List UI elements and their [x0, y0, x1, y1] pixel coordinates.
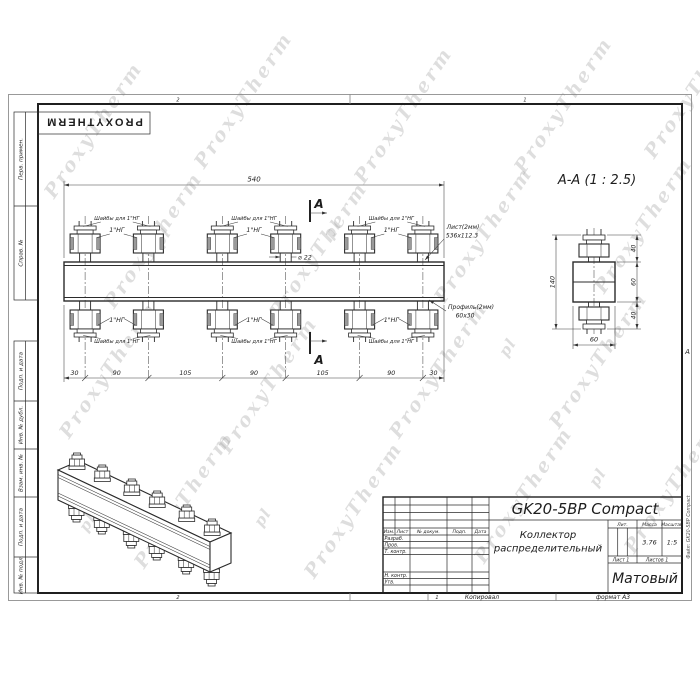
sidebar-columns: Перв. примен. Справ. № Подп. и дата Инв.…: [14, 112, 38, 594]
manifold-body: [64, 262, 444, 301]
section-mark-bottom: A: [310, 332, 327, 367]
row-checked: Пров.: [385, 542, 399, 548]
row-ncontrol: Н. контр.: [385, 573, 408, 579]
copied-label: Копировал: [465, 594, 499, 601]
sidebar-label: Инв. № дубл.: [19, 406, 25, 444]
chain-dim: 30: [429, 370, 437, 377]
section-letter: A: [313, 353, 323, 367]
dim-40-top-label: 40: [631, 245, 638, 253]
chain-dim: 90: [387, 370, 395, 377]
zone-number: 2: [176, 595, 179, 601]
dim-40-bottom-label: 40: [631, 312, 638, 320]
washers-label: Шайбы для 1"НГ: [94, 216, 140, 222]
doc-code: GK20-5BP Compact: [512, 500, 660, 518]
front-view: 540 30 90 105 90 105 90 30 Шайбы для 1: [64, 176, 494, 383]
mass-label: Масса: [642, 522, 657, 528]
fold-letter: А: [684, 348, 690, 356]
callout-sheet-line2: 536х112.3: [446, 233, 478, 240]
finish-value: Матовый: [612, 571, 678, 587]
chain-dim: 90: [250, 370, 258, 377]
thread-label: 1"НГ: [384, 227, 400, 234]
doc-name-line2: распределительный: [493, 544, 603, 555]
sidebar-label: Справ. №: [19, 239, 25, 266]
row-approved: Утв.: [385, 579, 395, 585]
sheet-number: Лист 1: [612, 557, 630, 563]
drawing-linework: 2 1 2 1 Копировал формат А3 А Перв. прим…: [0, 0, 700, 700]
scale-value: 1:5: [667, 539, 677, 547]
zone-number: 1: [523, 98, 526, 104]
chain-dim: 90: [113, 370, 121, 377]
thread-label: 1"НГ: [384, 317, 400, 324]
lit-label: Лит.: [616, 522, 628, 528]
callout-sheet-line1: Лист(2мм): [446, 224, 480, 231]
section-view: A-A (1 : 2.5) 140: [549, 173, 642, 349]
section-letter: A: [313, 197, 323, 211]
scale-label: Масштаб: [661, 522, 683, 528]
mass-value: 3.76: [642, 539, 656, 547]
callout-profile-line1: Профиль(2мм): [448, 304, 494, 311]
washers-label: Шайбы для 1"НГ: [231, 339, 277, 345]
section-view-title: A-A (1 : 2.5): [557, 173, 636, 188]
format-label: формат А3: [596, 594, 630, 601]
chain-dim: 105: [317, 370, 329, 377]
dim-diameter: ⌀ 22: [269, 254, 312, 261]
zone-number: 2: [176, 98, 179, 104]
callout-profile-line2: 60х30: [456, 313, 475, 320]
thread-label: 1"НГ: [246, 227, 262, 234]
col-sign: Подп.: [453, 529, 467, 535]
dim-540-label: 540: [247, 176, 261, 184]
sidebar-label: Подп. и дата: [19, 351, 25, 390]
row-developed: Разраб.: [385, 536, 404, 542]
col-list: Лист: [396, 529, 409, 535]
diameter-label: ⌀ 22: [298, 254, 312, 261]
col-izm: Изм.: [384, 529, 395, 535]
doc-name-line1: Коллектор: [520, 530, 576, 541]
washers-label: Шайбы для 1"НГ: [231, 216, 277, 222]
dim-60-mid-label: 60: [631, 278, 638, 286]
brand-stamp-text: PROXYTHERM: [45, 116, 143, 128]
chain-dim: 105: [179, 370, 191, 377]
row-tcontrol: Т. контр.: [385, 549, 407, 555]
callout-profile: Профиль(2мм) 60х30: [429, 300, 494, 320]
sidebar-label: Взам. инв. №: [19, 454, 25, 492]
sidebar-label: Подп. и дата: [19, 507, 25, 546]
zone-number: 1: [435, 595, 438, 601]
file-label: Файл: GK20-5BP Compact: [686, 494, 692, 558]
washers-label: Шайбы для 1"НГ: [94, 339, 140, 345]
washers-label: Шайбы для 1"НГ: [369, 216, 415, 222]
brand-stamp: PROXYTHERM: [38, 112, 150, 134]
washers-label: Шайбы для 1"НГ: [369, 339, 415, 345]
thread-label: 1"НГ: [109, 227, 125, 234]
section-mark-top: A: [310, 197, 327, 222]
col-doc: № докум.: [416, 529, 440, 535]
dim-140-label: 140: [549, 276, 557, 288]
sidebar-label: Перв. примен.: [19, 138, 25, 180]
thread-label: 1"НГ: [109, 317, 125, 324]
col-date: Дата: [474, 529, 487, 535]
thread-label: 1"НГ: [246, 317, 262, 324]
title-block: GK20-5BP Compact Коллектор распределител…: [383, 494, 692, 593]
dim-60-width-label: 60: [590, 336, 598, 344]
isometric-view: [58, 453, 231, 586]
drawing-sheet: ProxyTherm ProxyTherm ProxyTherm ProxyTh…: [0, 0, 700, 700]
chain-dim: 30: [70, 370, 78, 377]
sidebar-label: Инв. № подл.: [19, 555, 25, 594]
sheets-total: Листов 1: [645, 557, 669, 563]
